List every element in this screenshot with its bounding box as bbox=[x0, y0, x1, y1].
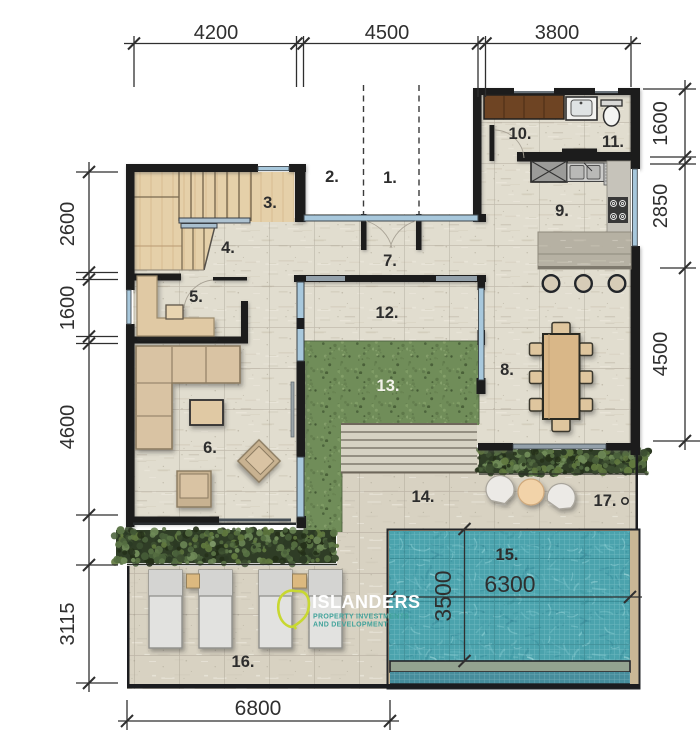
svg-text:10.: 10. bbox=[509, 125, 532, 143]
svg-text:5.: 5. bbox=[189, 288, 203, 306]
svg-text:3.: 3. bbox=[263, 194, 277, 212]
svg-text:4500: 4500 bbox=[365, 22, 410, 44]
svg-text:1600: 1600 bbox=[57, 286, 79, 331]
svg-text:7.: 7. bbox=[383, 252, 397, 270]
svg-text:14.: 14. bbox=[412, 488, 435, 506]
svg-text:11.: 11. bbox=[602, 133, 624, 151]
svg-text:16.: 16. bbox=[232, 653, 255, 671]
svg-text:2.: 2. bbox=[325, 168, 339, 186]
svg-text:AND DEVELOPMENT: AND DEVELOPMENT bbox=[313, 622, 388, 629]
svg-text:2600: 2600 bbox=[57, 202, 79, 247]
svg-text:1600: 1600 bbox=[650, 101, 672, 146]
svg-text:9.: 9. bbox=[555, 202, 569, 220]
svg-text:4600: 4600 bbox=[57, 405, 79, 450]
svg-text:4200: 4200 bbox=[194, 22, 239, 44]
svg-text:8.: 8. bbox=[500, 361, 514, 379]
svg-text:3500: 3500 bbox=[430, 570, 456, 621]
svg-text:2850: 2850 bbox=[650, 184, 672, 229]
svg-text:13.: 13. bbox=[377, 377, 400, 395]
svg-text:4.: 4. bbox=[221, 239, 235, 257]
svg-text:12.: 12. bbox=[376, 304, 399, 322]
svg-text:ISLANDERS: ISLANDERS bbox=[312, 592, 421, 612]
svg-text:6.: 6. bbox=[203, 439, 217, 457]
svg-text:1.: 1. bbox=[383, 169, 397, 187]
svg-text:6800: 6800 bbox=[235, 697, 282, 720]
svg-text:3115: 3115 bbox=[57, 602, 79, 645]
svg-text:17.: 17. bbox=[594, 492, 617, 510]
svg-text:15.: 15. bbox=[496, 546, 519, 564]
svg-text:6300: 6300 bbox=[484, 571, 535, 597]
svg-text:3800: 3800 bbox=[535, 22, 580, 44]
svg-text:4500: 4500 bbox=[650, 332, 672, 377]
svg-text:PROPERTY INVESTMENTS: PROPERTY INVESTMENTS bbox=[313, 614, 409, 621]
